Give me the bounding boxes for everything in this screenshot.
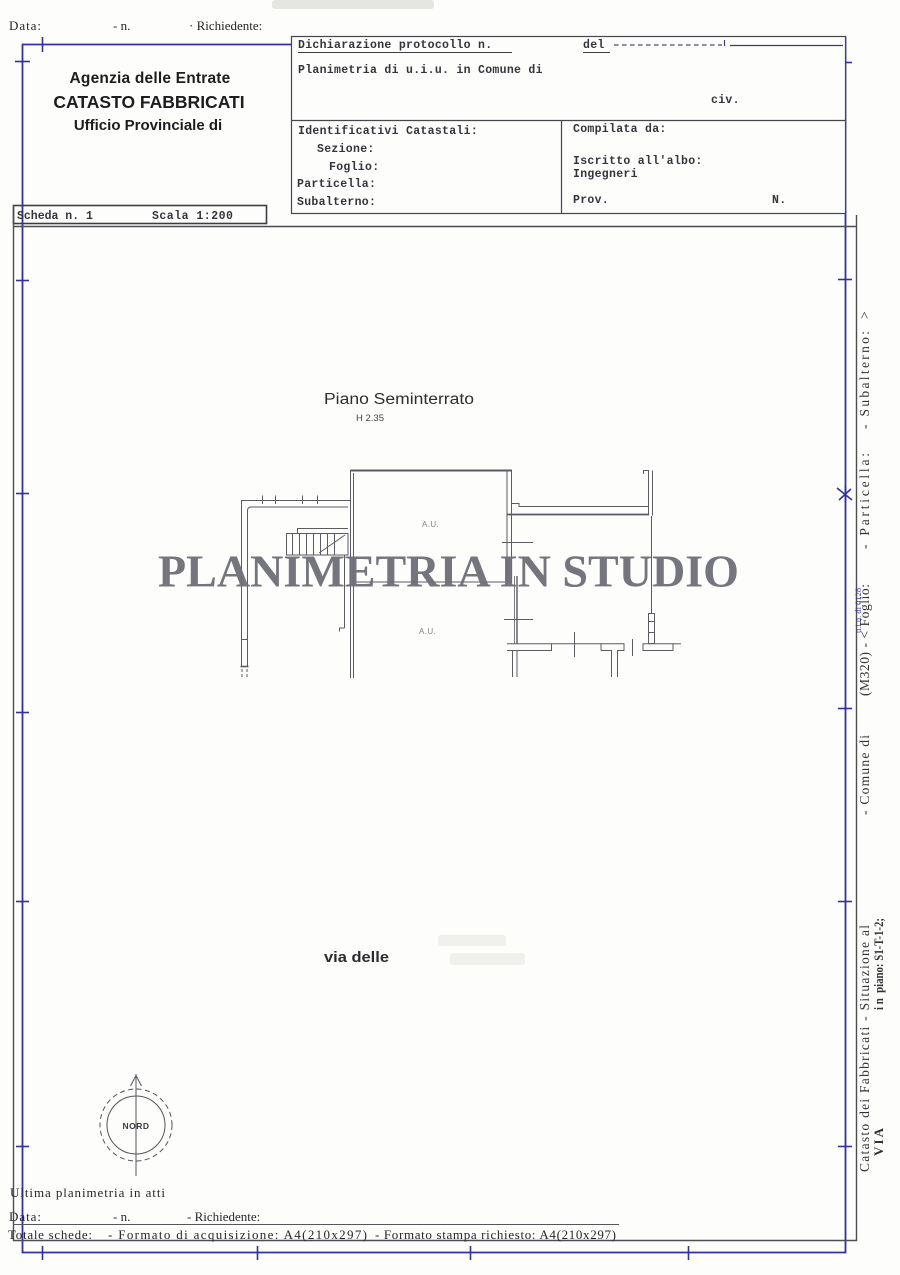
svg-text:· Richiedente:: · Richiedente:: [189, 18, 262, 33]
svg-text:Catasto dei Fabbricati - Situa: Catasto dei Fabbricati - Situazione al: [857, 925, 872, 1172]
svg-text:- Particella:: - Particella:: [857, 453, 872, 549]
svg-text:Data:: Data:: [9, 1209, 41, 1224]
svg-text:civ.: civ.: [711, 94, 740, 107]
svg-text:- Richiedente:: - Richiedente:: [187, 1209, 260, 1224]
svg-text:Compilata da:: Compilata da:: [573, 123, 667, 136]
svg-text:Sezione:: Sezione:: [317, 143, 375, 156]
svg-text:del: del: [583, 39, 605, 52]
svg-text:Subalterno:: Subalterno:: [297, 196, 376, 209]
svg-text:- n.: - n.: [113, 1209, 130, 1224]
svg-text:- Formato di acquisizione: A4(: - Formato di acquisizione: A4(210x297): [108, 1227, 367, 1242]
svg-text:Scala 1:200: Scala 1:200: [152, 210, 233, 223]
svg-text:via delle: via delle: [324, 950, 389, 966]
svg-text:Iscritto all'albo:: Iscritto all'albo:: [573, 155, 703, 168]
svg-text:u.i.u. di 0128: u.i.u. di 0128: [853, 588, 863, 633]
svg-text:PLANIMETRIA IN STUDIO: PLANIMETRIA IN STUDIO: [158, 546, 739, 597]
svg-text:- Formato stampa richiesto: A4: - Formato stampa richiesto: A4(210x297): [375, 1227, 616, 1242]
svg-text:Totale schede:: Totale schede:: [8, 1227, 92, 1242]
svg-text:Ufficio Provinciale di: Ufficio Provinciale di: [74, 117, 222, 134]
svg-text:N.: N.: [772, 194, 786, 207]
svg-text:Planimetria di u.i.u. in Comun: Planimetria di u.i.u. in Comune di: [298, 64, 543, 77]
svg-text:Agenzia delle Entrate: Agenzia delle Entrate: [70, 70, 231, 87]
svg-text:Particella:: Particella:: [297, 178, 376, 191]
svg-text:CATASTO FABBRICATI: CATASTO FABBRICATI: [53, 92, 244, 112]
svg-text:Data:: Data:: [9, 18, 41, 33]
svg-text:Prov.: Prov.: [573, 194, 609, 207]
svg-text:i n piano: S1-T-1-2;: i n piano: S1-T-1-2;: [871, 918, 886, 1010]
svg-text:Piano Seminterrato: Piano Seminterrato: [324, 391, 474, 408]
svg-text:VIA: VIA: [871, 1127, 886, 1156]
svg-text:- n.: - n.: [113, 18, 130, 33]
svg-text:Ingegneri: Ingegneri: [573, 168, 638, 181]
svg-text:A.U.: A.U.: [419, 627, 436, 636]
svg-text:A.U.: A.U.: [422, 520, 439, 529]
svg-text:Foglio:: Foglio:: [329, 161, 379, 174]
svg-text:- Subalterno:: - Subalterno:: [857, 331, 872, 429]
svg-text:H 2.35: H 2.35: [356, 413, 384, 424]
svg-text:>: >: [857, 311, 872, 319]
svg-text:Identificativi Catastali:: Identificativi Catastali:: [298, 125, 478, 138]
svg-text:Dichiarazione protocollo n.: Dichiarazione protocollo n.: [298, 39, 492, 52]
svg-text:Scheda n. 1: Scheda n. 1: [17, 210, 93, 223]
svg-text:- Comune di: - Comune di: [857, 735, 872, 815]
svg-text:NORD: NORD: [122, 1121, 149, 1131]
svg-text:Ultima planimetria in atti: Ultima planimetria in atti: [10, 1185, 165, 1200]
